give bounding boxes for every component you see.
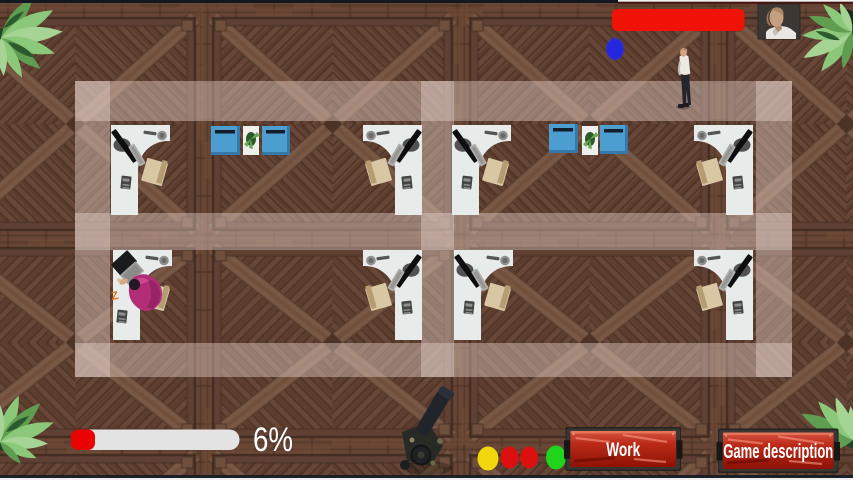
svg-text:Game description: Game description <box>723 441 833 463</box>
svg-text:6%: 6% <box>253 421 293 459</box>
svg-text:Work: Work <box>606 440 640 461</box>
